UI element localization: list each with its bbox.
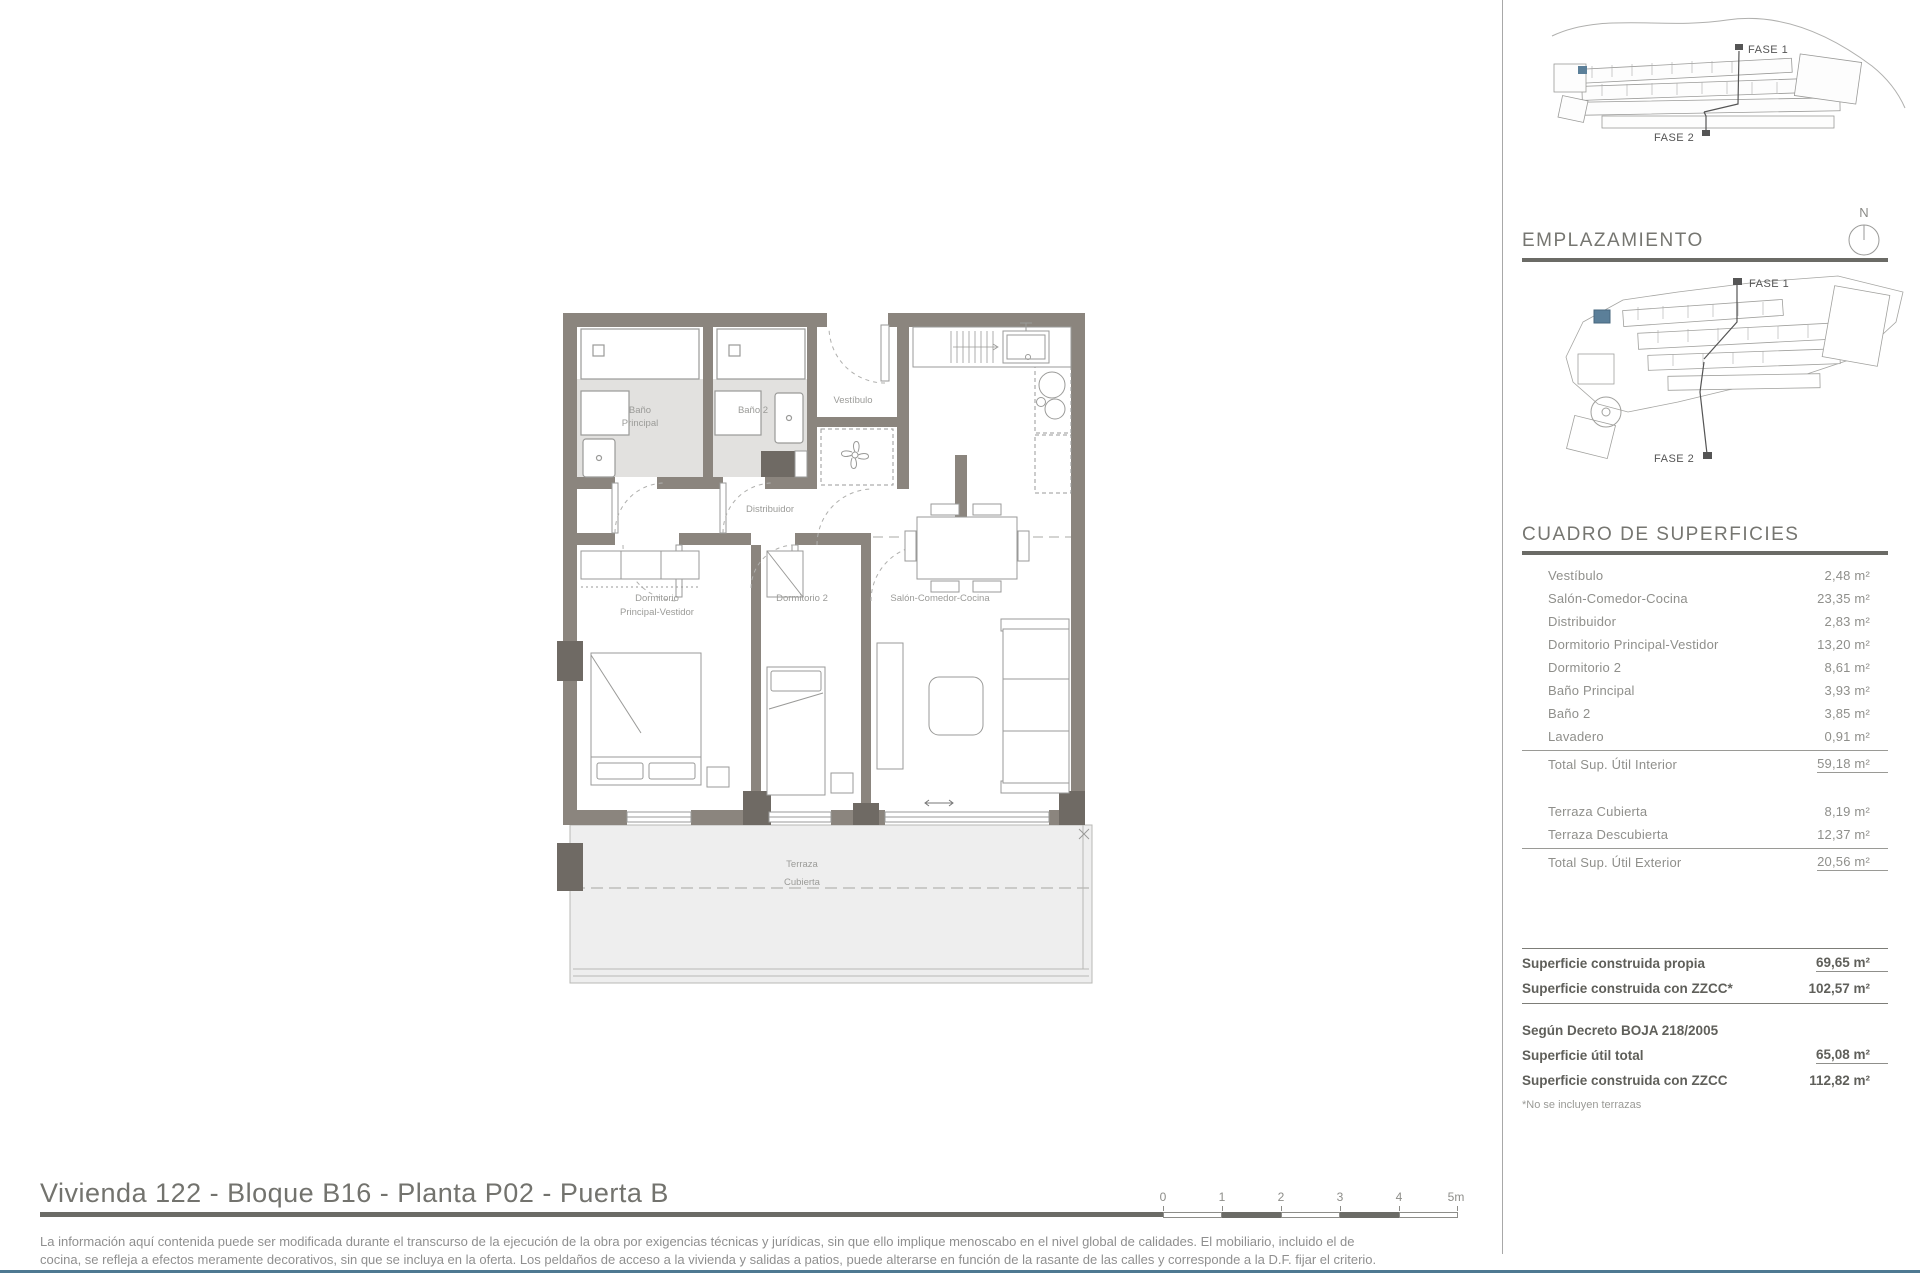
bedroom2-furniture	[767, 551, 853, 795]
room-label-terraza-2: Cubierta	[784, 877, 821, 888]
row-label: Dormitorio Principal-Vestidor	[1522, 637, 1719, 652]
row-value: 69,65 m²	[1816, 955, 1888, 972]
bedroom1-furniture	[581, 551, 729, 787]
surfaces-interior-table: Vestíbulo 2,48 m² Salón-Comedor-Cocina 2…	[1522, 564, 1888, 777]
decree-row: Superficie útil total 65,08 m²	[1522, 1043, 1888, 1068]
table-row: Terraza Descubierta 12,37 m²	[1522, 823, 1888, 846]
row-label: Total Sup. Útil Interior	[1522, 757, 1677, 772]
row-value: 2,48 m²	[1825, 568, 1888, 583]
built-surface-block: Superficie construida propia 69,65 m² Su…	[1522, 948, 1888, 1004]
row-value: 65,08 m²	[1816, 1047, 1888, 1064]
siteplan2-fase1-label: FASE 1	[1749, 278, 1789, 290]
built-row: Superficie construida con ZZCC* 102,57 m…	[1522, 976, 1888, 1001]
bottom-accent-line	[0, 1270, 1920, 1273]
scale-label: 4	[1396, 1190, 1403, 1204]
floorplan-drawing: Baño Principal Baño 2 Vestíbulo Distribu…	[555, 305, 1100, 1010]
row-label: Superficie útil total	[1522, 1048, 1644, 1063]
row-label: Superficie construida propia	[1522, 956, 1705, 971]
living-furniture	[877, 504, 1069, 793]
row-label: Dormitorio 2	[1522, 660, 1621, 675]
table-row: Dormitorio Principal-Vestidor 13,20 m²	[1522, 633, 1888, 656]
surfaces-heading: CUADRO DE SUPERFICIES	[1522, 524, 1799, 546]
room-label-bano-principal-2: Principal	[622, 418, 658, 429]
row-value: 112,82 m²	[1809, 1073, 1888, 1088]
row-value: 102,57 m²	[1808, 981, 1888, 996]
room-label-salon: Salón-Comedor-Cocina	[890, 593, 990, 604]
footnote: *No se incluyen terrazas	[1522, 1099, 1888, 1111]
row-label: Terraza Cubierta	[1522, 804, 1647, 819]
room-label-dormitorio-principal-2: Principal-Vestidor	[620, 607, 694, 618]
row-value: 59,18 m²	[1817, 756, 1888, 773]
row-label: Baño Principal	[1522, 683, 1635, 698]
scale-label: 0	[1160, 1190, 1167, 1204]
row-label: Superficie construida con ZZCC	[1522, 1073, 1728, 1088]
plan-sheet: Baño Principal Baño 2 Vestíbulo Distribu…	[0, 0, 1920, 1280]
row-value: 23,35 m²	[1817, 591, 1888, 606]
row-value: 0,91 m²	[1825, 729, 1888, 744]
siteplan-plan: FASE 1 FASE 2	[1528, 262, 1920, 467]
scale-label: 2	[1278, 1190, 1285, 1204]
surfaces-rule	[1522, 551, 1888, 555]
decree-row: Superficie construida con ZZCC 112,82 m²	[1522, 1068, 1888, 1093]
room-label-vestibulo: Vestíbulo	[833, 395, 872, 406]
disclaimer-line-2: cocina, se refleja a efectos meramente d…	[40, 1251, 1376, 1269]
room-label-distribuidor: Distribuidor	[746, 504, 794, 515]
surfaces-exterior-table: Terraza Cubierta 8,19 m² Terraza Descubi…	[1522, 800, 1888, 875]
row-label: Distribuidor	[1522, 614, 1616, 629]
slider-arrow-icon	[925, 800, 953, 806]
interior-total-row: Total Sup. Útil Interior 59,18 m²	[1522, 750, 1888, 777]
built-row: Superficie construida propia 69,65 m²	[1522, 951, 1888, 976]
row-label: Vestíbulo	[1522, 568, 1603, 583]
kitchen-fixtures	[913, 323, 1071, 493]
row-value: 8,61 m²	[1825, 660, 1888, 675]
row-label: Baño 2	[1522, 706, 1590, 721]
shaft-box	[795, 451, 807, 477]
sheet-title: Vivienda 122 - Bloque B16 - Planta P02 -…	[40, 1178, 669, 1209]
table-row: Terraza Cubierta 8,19 m²	[1522, 800, 1888, 823]
table-row: Dormitorio 2 8,61 m²	[1522, 656, 1888, 679]
table-row: Lavadero 0,91 m²	[1522, 725, 1888, 748]
row-value: 3,85 m²	[1825, 706, 1888, 721]
room-label-bano-principal: Baño	[629, 405, 651, 416]
scale-label: 3	[1337, 1190, 1344, 1204]
room-label-dormitorio-2: Dormitorio 2	[776, 593, 828, 604]
disclaimer-line-1: La información aquí contenida puede ser …	[40, 1233, 1355, 1251]
svg-text:N: N	[1859, 205, 1868, 220]
siteplan1-fase1-label: FASE 1	[1748, 44, 1788, 56]
row-label: Salón-Comedor-Cocina	[1522, 591, 1688, 606]
row-label: Terraza Descubierta	[1522, 827, 1668, 842]
row-value: 20,56 m²	[1817, 854, 1888, 871]
unit-highlight-plan	[1594, 310, 1610, 323]
title-rule	[40, 1212, 1163, 1217]
unit-highlight-aerial	[1578, 66, 1587, 74]
emplazamiento-heading: EMPLAZAMIENTO	[1522, 230, 1704, 252]
table-row: Vestíbulo 2,48 m²	[1522, 564, 1888, 587]
decree-heading: Según Decreto BOJA 218/2005	[1522, 1018, 1888, 1043]
sidebar-divider	[1502, 0, 1503, 1254]
terrace-area	[570, 825, 1092, 983]
siteplan1-fase2-label: FASE 2	[1654, 132, 1694, 144]
fan-icon	[821, 429, 893, 485]
row-value: 13,20 m²	[1817, 637, 1888, 652]
north-compass-icon: N	[1845, 203, 1885, 259]
exterior-total-row: Total Sup. Útil Exterior 20,56 m²	[1522, 848, 1888, 875]
siteplan-aerial: FASE 1 FASE 2	[1542, 6, 1912, 156]
row-value: 2,83 m²	[1825, 614, 1888, 629]
siteplan2-fase2-label: FASE 2	[1654, 453, 1694, 465]
room-label-terraza: Terraza	[786, 859, 818, 870]
row-value: 3,93 m²	[1825, 683, 1888, 698]
row-value: 8,19 m²	[1825, 804, 1888, 819]
table-row: Salón-Comedor-Cocina 23,35 m²	[1522, 587, 1888, 610]
row-value: 12,37 m²	[1817, 827, 1888, 842]
table-row: Distribuidor 2,83 m²	[1522, 610, 1888, 633]
row-label: Total Sup. Útil Exterior	[1522, 855, 1681, 870]
scale-label: 5m	[1448, 1190, 1465, 1204]
decree-block: Según Decreto BOJA 218/2005 Superficie ú…	[1522, 1018, 1888, 1111]
scale-bar: 0 1 2 3 4 5m	[1163, 1190, 1458, 1220]
scale-label: 1	[1219, 1190, 1226, 1204]
room-label-dormitorio-principal: Dormitorio	[635, 593, 679, 604]
room-label-bano-2: Baño 2	[738, 405, 768, 416]
table-row: Baño 2 3,85 m²	[1522, 702, 1888, 725]
table-row: Baño Principal 3,93 m²	[1522, 679, 1888, 702]
row-label: Lavadero	[1522, 729, 1604, 744]
row-label: Superficie construida con ZZCC*	[1522, 981, 1733, 996]
